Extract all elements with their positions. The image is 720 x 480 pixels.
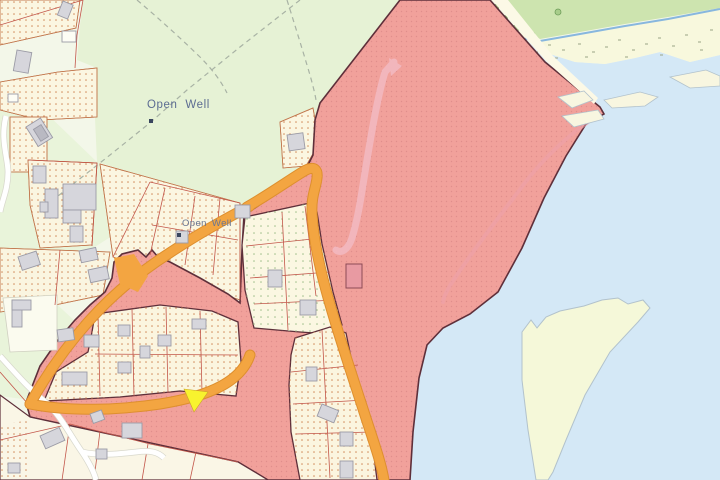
building-in-zone: [346, 264, 362, 288]
map-viewport[interactable]: Open Well Open Well: [0, 0, 720, 480]
open-well-marker-1: [149, 119, 153, 123]
open-well-label-2: Open Well: [182, 218, 232, 229]
open-well-label-1: Open Well: [147, 99, 210, 111]
open-well-marker-2: [177, 233, 181, 237]
map-canvas[interactable]: Open Well Open Well: [0, 0, 720, 480]
